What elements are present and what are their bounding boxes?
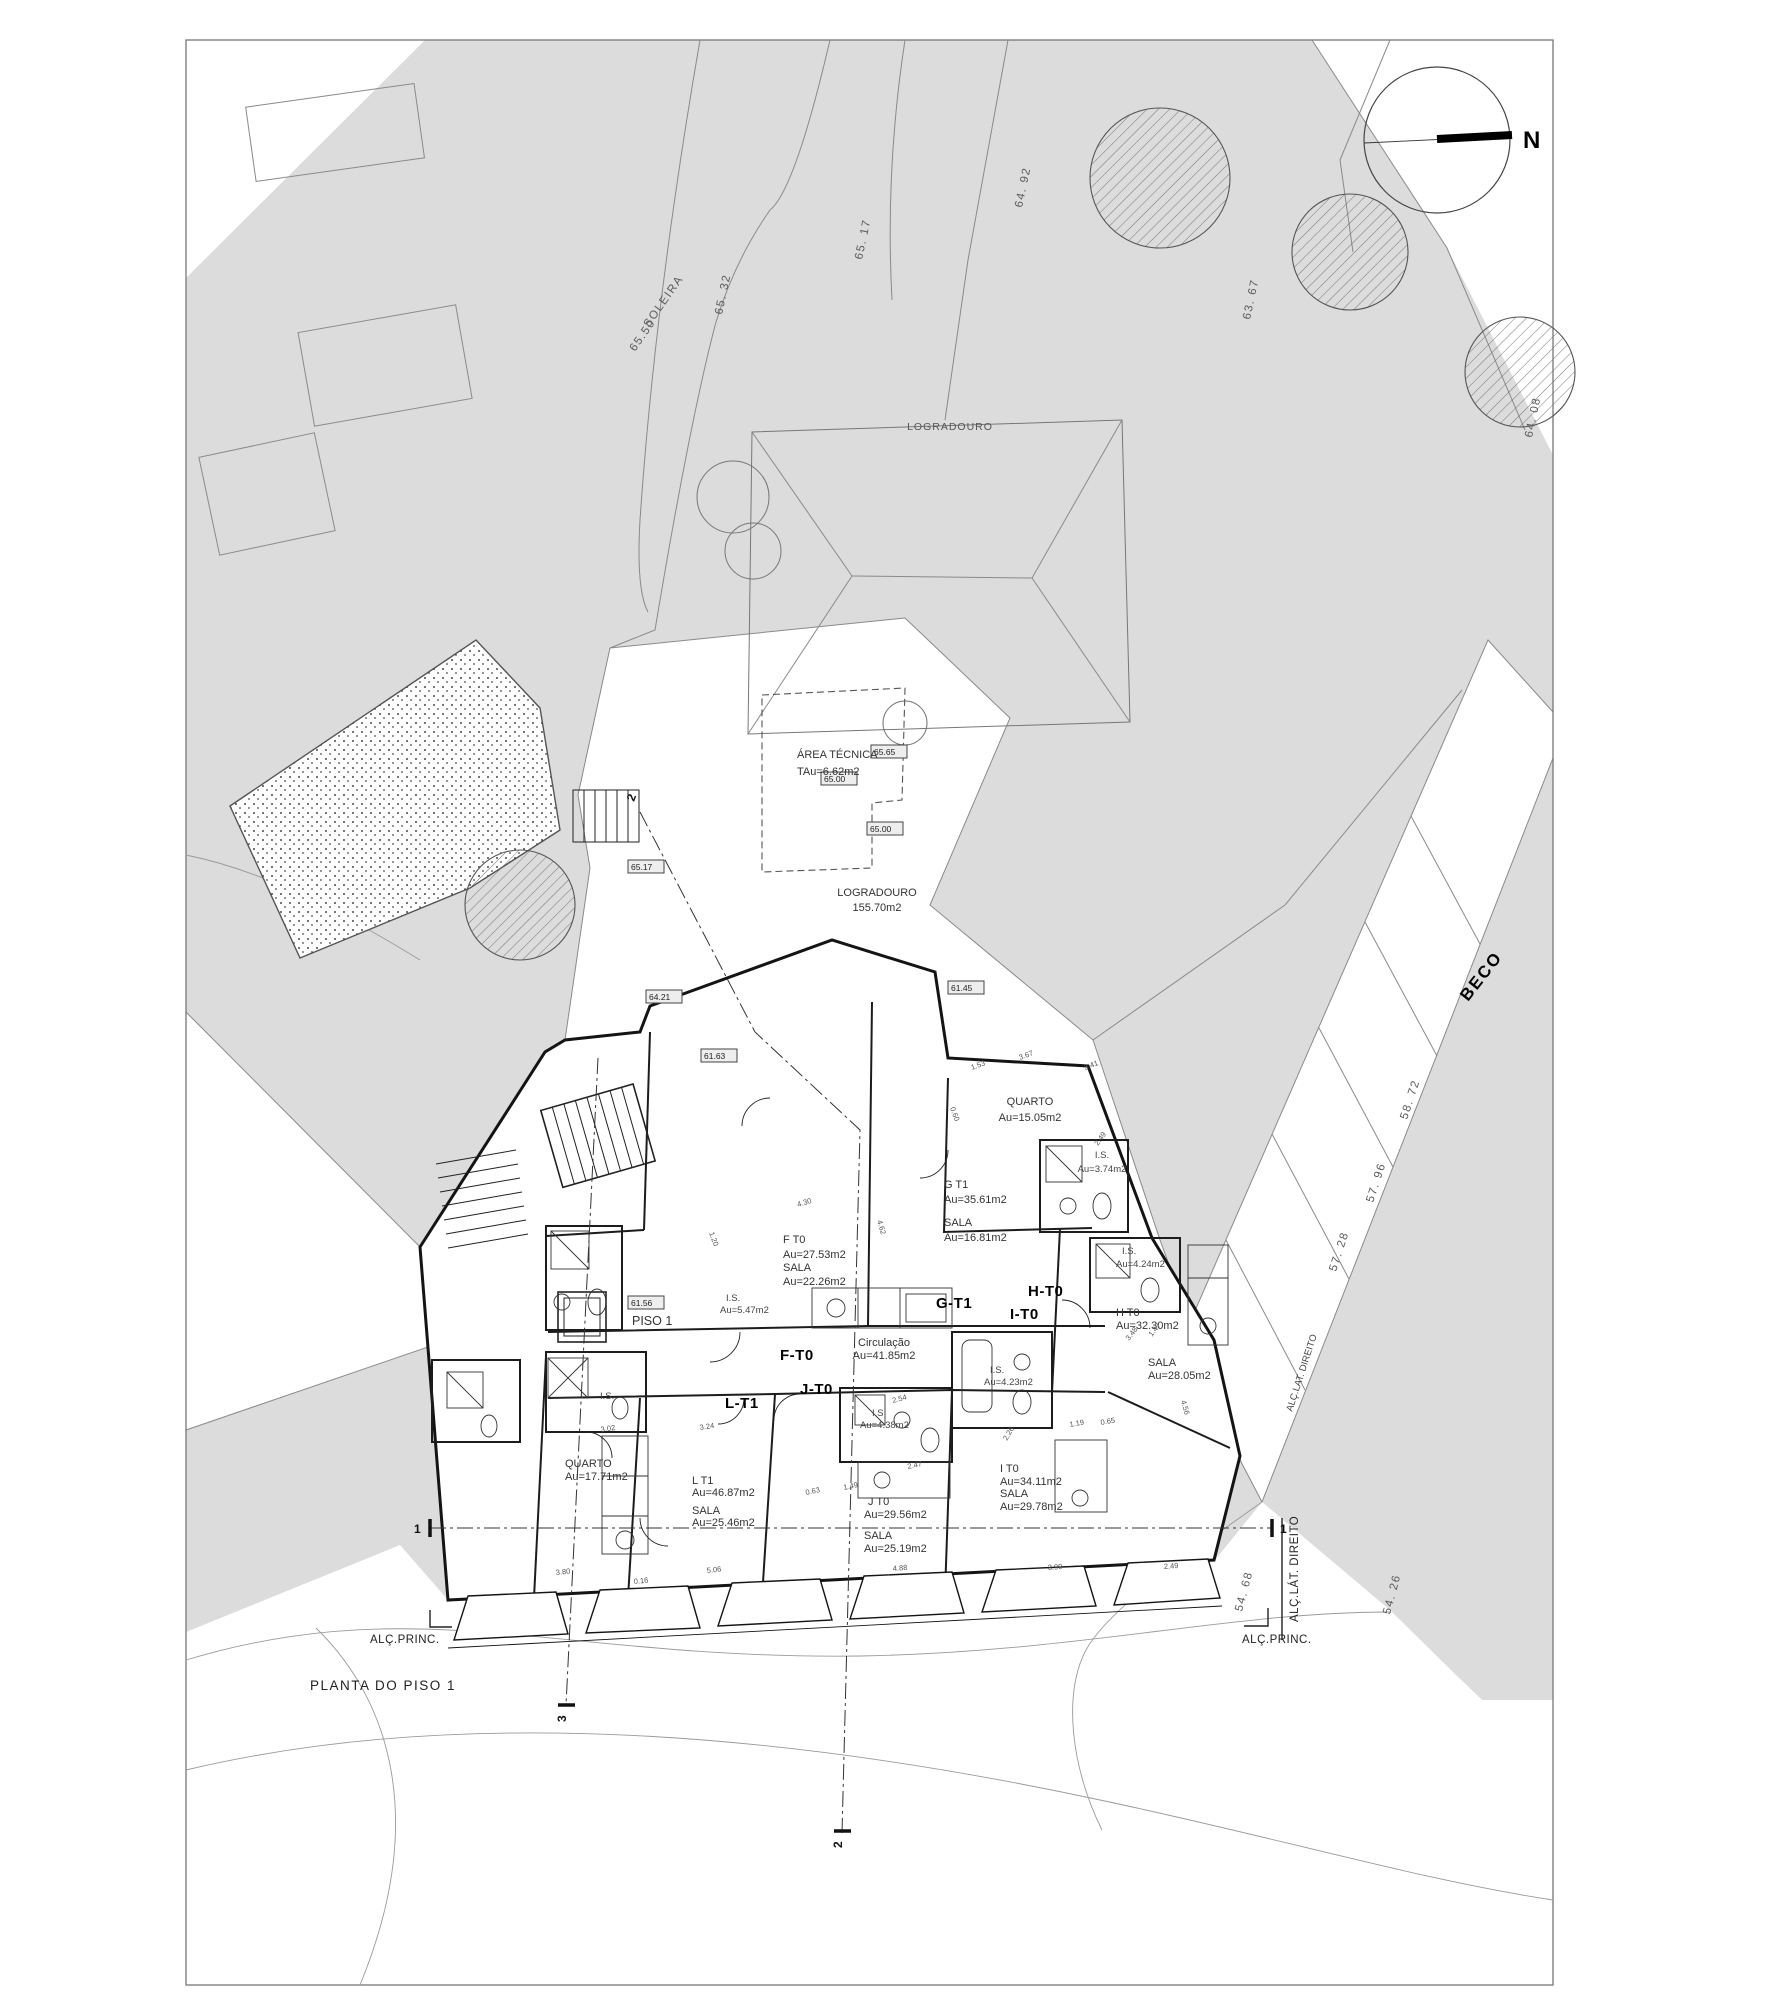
room-name: SALA (783, 1262, 812, 1274)
yard-area: 155.70m2 (853, 902, 902, 914)
room-area: Au=16.81m2 (944, 1232, 1007, 1244)
yard-label: LOGRADOURO (837, 887, 917, 899)
section-label-1-left: 1 (414, 1522, 421, 1536)
room-name: H T0 (1116, 1307, 1140, 1319)
room-area: Au=25.19m2 (864, 1543, 927, 1555)
section-label-2-bottom: 2 (831, 1841, 845, 1848)
room-area: Au=5.47m2 (720, 1305, 769, 1316)
dim-label: 3.99 (1048, 1562, 1063, 1572)
room-area: Au=41.85m2 (853, 1350, 916, 1362)
room-area: Au=4.24m2 (1116, 1259, 1165, 1270)
drawing-sheet: N 65.65 65.00 65.00 65.17 64.21 61.63 61… (0, 0, 1770, 2000)
room-name: Circulação (858, 1337, 910, 1349)
level-chip: 65.00 (870, 824, 892, 834)
drawing-title: PLANTA DO PISO 1 (310, 1678, 456, 1693)
unit-marker-i-t0: I-T0 (1010, 1306, 1039, 1323)
dim-label: 2.49 (1164, 1561, 1179, 1571)
room-name: SALA (692, 1505, 721, 1517)
room-name: SALA (864, 1530, 893, 1542)
room-name: QUARTO (1007, 1096, 1054, 1108)
alc-princ-right: ALÇ.PRINC. (1242, 1634, 1312, 1646)
room-name: F T0 (783, 1234, 805, 1246)
room-area: Au=22.26m2 (783, 1276, 846, 1288)
north-label: N (1523, 127, 1540, 154)
unit-marker-l-t1: L-T1 (725, 1395, 759, 1412)
floor-plan-svg: N 65.65 65.00 65.00 65.17 64.21 61.63 61… (0, 0, 1770, 2000)
room-name: G T1 (944, 1179, 968, 1191)
unit-marker-f-t0: F-T0 (780, 1347, 814, 1364)
dim-label: 4.88 (892, 1563, 907, 1573)
section-label-1-right: 1 (1280, 1522, 1287, 1536)
unit-marker-g-t1: G-T1 (936, 1295, 972, 1312)
level-chip: 61.45 (951, 983, 973, 993)
dim-label: 5.06 (706, 1565, 721, 1575)
level-chip: 61.63 (704, 1051, 726, 1061)
room-area: Au=3.74m2 (1078, 1164, 1127, 1175)
room-area: Au=4.23m2 (984, 1377, 1033, 1388)
unit-marker-h-t0: H-T0 (1028, 1283, 1063, 1300)
room-name: I T0 (1000, 1463, 1019, 1475)
room-area: Au=25.46m2 (692, 1517, 755, 1529)
alc-princ-left: ALÇ.PRINC. (370, 1634, 440, 1646)
upper-yard-label: LOGRADOURO (907, 421, 993, 433)
level-chip: 65.17 (631, 862, 653, 872)
dim-label: 3.80 (555, 1567, 570, 1577)
room-name: I.S. (1122, 1246, 1136, 1257)
alc-lat-direito: ALÇ.LÁT. DIREITO (1288, 1516, 1301, 1622)
room-name: SALA (1148, 1357, 1177, 1369)
level-chip: 61.56 (631, 1298, 653, 1308)
room-name: QUARTO (565, 1458, 612, 1470)
tech-area-label: ÁREA TÉCNICA (797, 748, 878, 761)
room-name: I.S. (600, 1391, 614, 1402)
level-chip: 64.21 (649, 992, 671, 1002)
room-area: Au=28.05m2 (1148, 1370, 1211, 1382)
room-name: SALA (944, 1217, 973, 1229)
room-area: Au=4.38m2 (860, 1420, 909, 1431)
room-area: Au=46.87m2 (692, 1487, 755, 1499)
floor-tag: PISO 1 (632, 1314, 672, 1328)
dim-label: 0.16 (633, 1576, 648, 1586)
room-name: J T0 (868, 1496, 889, 1508)
room-area: Au=35.61m2 (944, 1194, 1007, 1206)
room-name: I.S. (990, 1365, 1004, 1376)
room-area: Au=27.53m2 (783, 1249, 846, 1261)
room-name: SALA (1000, 1488, 1029, 1500)
room-area: Au=29.78m2 (1000, 1501, 1063, 1513)
room-area: Au=17.71m2 (565, 1471, 628, 1483)
room-name: I.S. (872, 1408, 886, 1419)
room-area: Au=34.11m2 (1000, 1476, 1062, 1488)
room-name: I.S. (1095, 1150, 1109, 1161)
room-name: I.S. (726, 1293, 740, 1304)
section-label-3-bottom: 3 (555, 1715, 569, 1722)
tech-area-value: TAu=6.62m2 (797, 766, 859, 778)
room-area: Au=29.56m2 (864, 1509, 927, 1521)
unit-marker-j-t0: J-T0 (800, 1381, 833, 1398)
room-name: L T1 (692, 1475, 713, 1487)
room-area: Au=15.05m2 (999, 1112, 1062, 1124)
